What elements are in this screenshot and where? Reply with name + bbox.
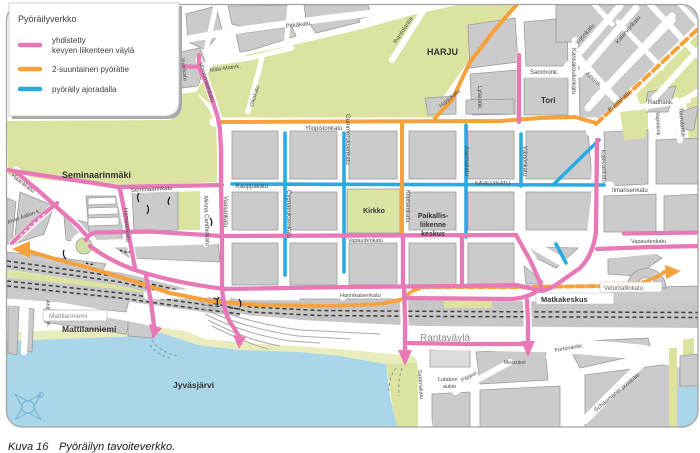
svg-text:Sammonk.: Sammonk. (530, 70, 559, 76)
svg-text:Gummeruksenkatu: Gummeruksenkatu (344, 114, 350, 165)
svg-text:liikenne: liikenne (420, 222, 446, 229)
svg-text:Väinönkatu: Väinönkatu (521, 146, 527, 176)
svg-text:Vapriikink.: Vapriikink. (654, 112, 661, 138)
svg-text:Ilmarisenkatu: Ilmarisenkatu (612, 188, 648, 194)
svg-text:Asemakatu: Asemakatu (463, 146, 469, 176)
svg-text:Seminaarinmäki: Seminaarinmäki (62, 170, 131, 180)
svg-text:Messutori: Messutori (504, 360, 526, 366)
svg-text:Mattilanniemi: Mattilanniemi (62, 324, 116, 334)
svg-text:Rauhank.: Rauhank. (648, 100, 674, 106)
svg-text:Kauppakatu: Kauppakatu (236, 184, 268, 190)
svg-text:Kirkko: Kirkko (363, 208, 385, 215)
svg-text:Rantaväylä: Rantaväylä (420, 333, 470, 344)
svg-text:Lyseonk.: Lyseonk. (476, 86, 482, 110)
svg-text:Hannikaisenkatu: Hannikaisenkatu (340, 293, 381, 299)
svg-text:Jyväsjärvi: Jyväsjärvi (173, 380, 214, 390)
svg-text:KÄVELYKATU: KÄVELYKATU (475, 180, 510, 187)
svg-text:aukio: aukio (443, 384, 456, 390)
svg-text:Pyöräilyn tavoiteverkko.: Pyöräilyn tavoiteverkko. (59, 441, 175, 453)
svg-text:2-suuntainen pyörätie: 2-suuntainen pyörätie (52, 65, 129, 74)
svg-text:yhdistetty: yhdistetty (52, 36, 86, 45)
svg-text:Kansakoulunkatu: Kansakoulunkatu (570, 48, 576, 94)
svg-text:pyöräily ajoradalla: pyöräily ajoradalla (52, 85, 117, 94)
svg-text:Vapaudenkatu: Vapaudenkatu (348, 238, 383, 244)
svg-text:Pyöräilyverkko: Pyöräilyverkko (18, 14, 77, 24)
svg-text:Matkakeskus: Matkakeskus (541, 295, 588, 304)
svg-text:HARJU: HARJU (427, 47, 458, 57)
svg-text:Mattilanniemi: Mattilanniemi (49, 313, 87, 320)
svg-text:Paikallis-: Paikallis- (418, 213, 449, 220)
svg-text:Vaasankatu: Vaasankatu (222, 196, 228, 227)
svg-text:Cygnaeuksenkatu: Cygnaeuksenkatu (285, 190, 291, 238)
svg-text:keskus: keskus (421, 231, 445, 238)
svg-text:Yliopistonkatu: Yliopistonkatu (305, 126, 342, 132)
svg-text:Tori: Tori (541, 96, 556, 105)
svg-text:Veturitallinkatu: Veturitallinkatu (604, 286, 643, 292)
svg-text:kevyen liikenteen väylä: kevyen liikenteen väylä (52, 46, 135, 55)
svg-text:Vapaudenkatu: Vapaudenkatu (631, 239, 666, 245)
svg-text:Kilpisenkatu: Kilpisenkatu (404, 190, 410, 222)
svg-text:Lutakon: Lutakon (438, 377, 458, 383)
svg-text:Kuva 16: Kuva 16 (8, 441, 49, 453)
